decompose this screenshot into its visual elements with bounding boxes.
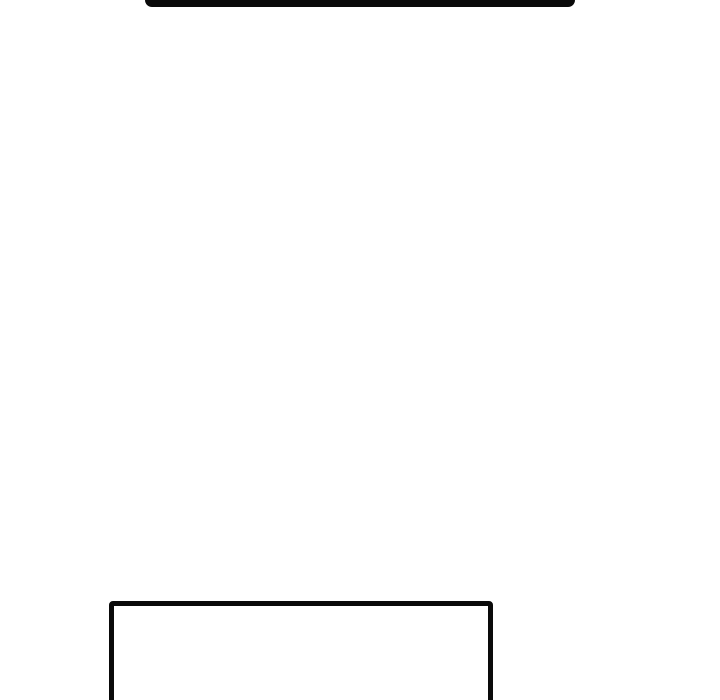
comic-page <box>0 0 720 700</box>
comic-panel-top-cropped <box>145 0 575 7</box>
comic-panel-bottom-cropped <box>109 601 493 700</box>
